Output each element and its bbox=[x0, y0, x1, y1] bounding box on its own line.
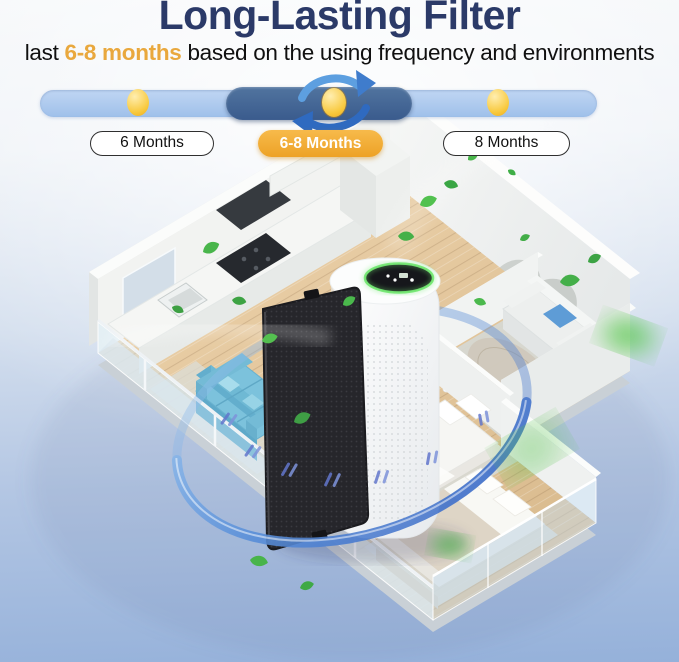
subtitle-highlight: 6-8 months bbox=[64, 40, 181, 65]
page-title: Long-Lasting Filter bbox=[0, 0, 679, 39]
subtitle-prefix: last bbox=[25, 40, 65, 65]
cycle-arrows-icon bbox=[286, 66, 382, 140]
option-6-8-months-selected: 6-8 Months bbox=[258, 130, 383, 157]
timeline-dot-8months bbox=[487, 89, 509, 116]
timeline-dot-6months bbox=[127, 89, 149, 116]
option-6-months: 6 Months bbox=[90, 131, 214, 156]
product-infographic: Long-Lasting Filter last 6-8 months base… bbox=[0, 0, 679, 662]
subtitle: last 6-8 months based on the using frequ… bbox=[0, 40, 679, 66]
option-8-months: 8 Months bbox=[443, 131, 570, 156]
subtitle-suffix: based on the using frequency and environ… bbox=[182, 40, 655, 65]
